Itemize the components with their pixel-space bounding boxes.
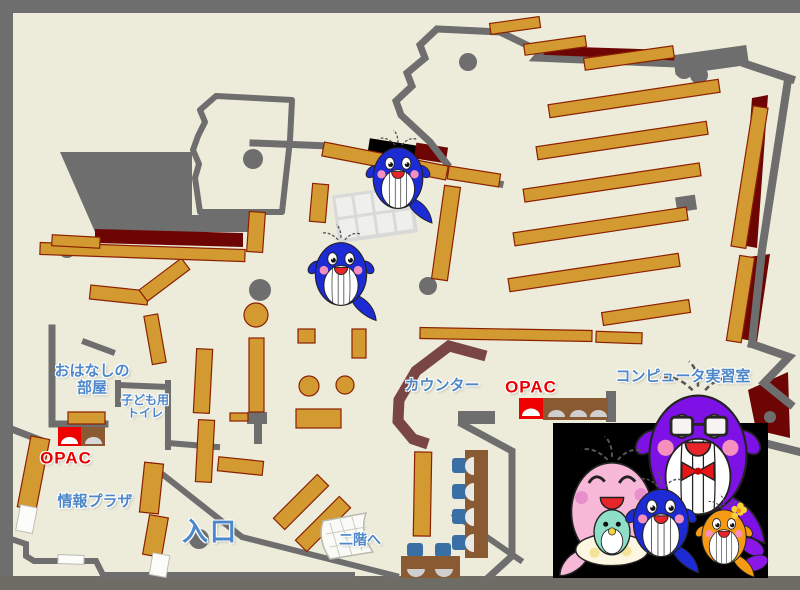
floor-peninsula [193,96,292,212]
label-kids-toilet: 子ども用 トイレ [121,394,169,420]
library-floor-map: おはなしの 部屋 子ども用 トイレ OPAC 情報プラザ 入口 二階へ カウンタ… [0,0,800,590]
label-counter: カウンター [404,378,479,395]
label-entrance: 入口 [182,518,238,547]
label-opac-right: OPAC [505,379,557,398]
label-opac-left: OPAC [40,450,92,469]
opac-terminal-right [519,398,608,420]
label-story-room: おはなしの 部屋 [54,364,129,397]
label-computer-room: コンピュータ実習室 [615,369,750,386]
opac-terminal-left [58,427,105,446]
label-info-plaza: 情報プラザ [57,494,132,511]
label-to-second-floor: 二階へ [339,532,381,547]
